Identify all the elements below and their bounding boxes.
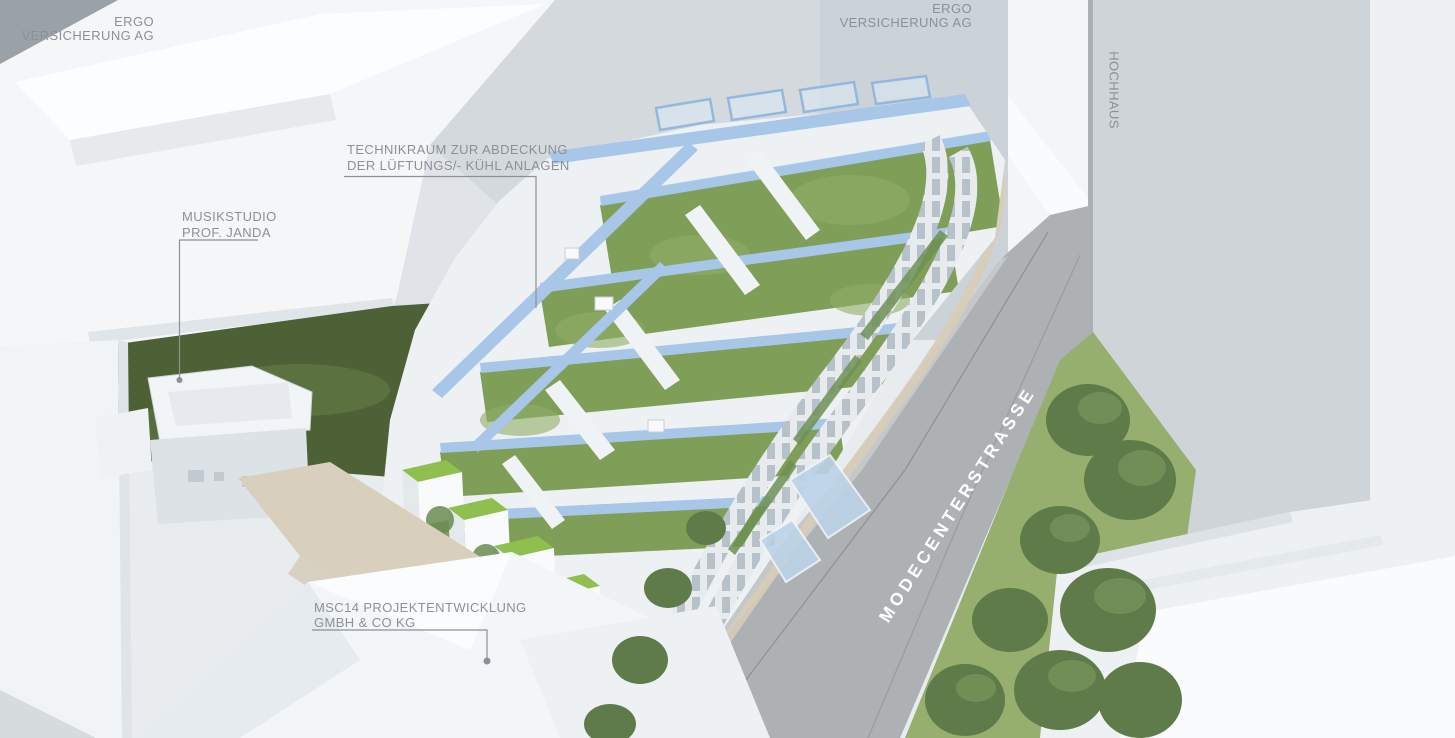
ergo-left-label-line2: VERSICHERUNG AG [22,28,154,43]
technikraum-label-line2: DER LÜFTUNGS/- KÜHL ANLAGEN [347,158,570,173]
hochhaus-label: HOCHHAUS [1107,51,1122,129]
rooftop-hvac-box [595,297,613,310]
site-plan-rendering: ERGO VERSICHERUNG AG ERGO VERSICHERUNG A… [0,0,1455,738]
left-foreground-building [0,340,132,738]
musikstudio-label-line1: MUSIKSTUDIO [182,209,277,224]
musikstudio-label-line2: PROF. JANDA [182,225,271,240]
msc14-leader-dot [484,658,491,665]
ergo-top-label-line1: ERGO [932,1,972,16]
ergo-left-label-line1: ERGO [114,14,154,29]
msc14-label-line2: GMBH & CO KG [314,615,416,630]
ergo-top-label-line2: VERSICHERUNG AG [840,15,972,30]
scene: ERGO VERSICHERUNG AG ERGO VERSICHERUNG A… [0,0,1455,738]
technikraum-label-line1: TECHNIKRAUM ZUR ABDECKUNG [347,142,568,157]
musikstudio-leader-dot [177,377,183,383]
msc14-label-line1: MSC14 PROJEKTENTWICKLUNG [314,600,527,615]
